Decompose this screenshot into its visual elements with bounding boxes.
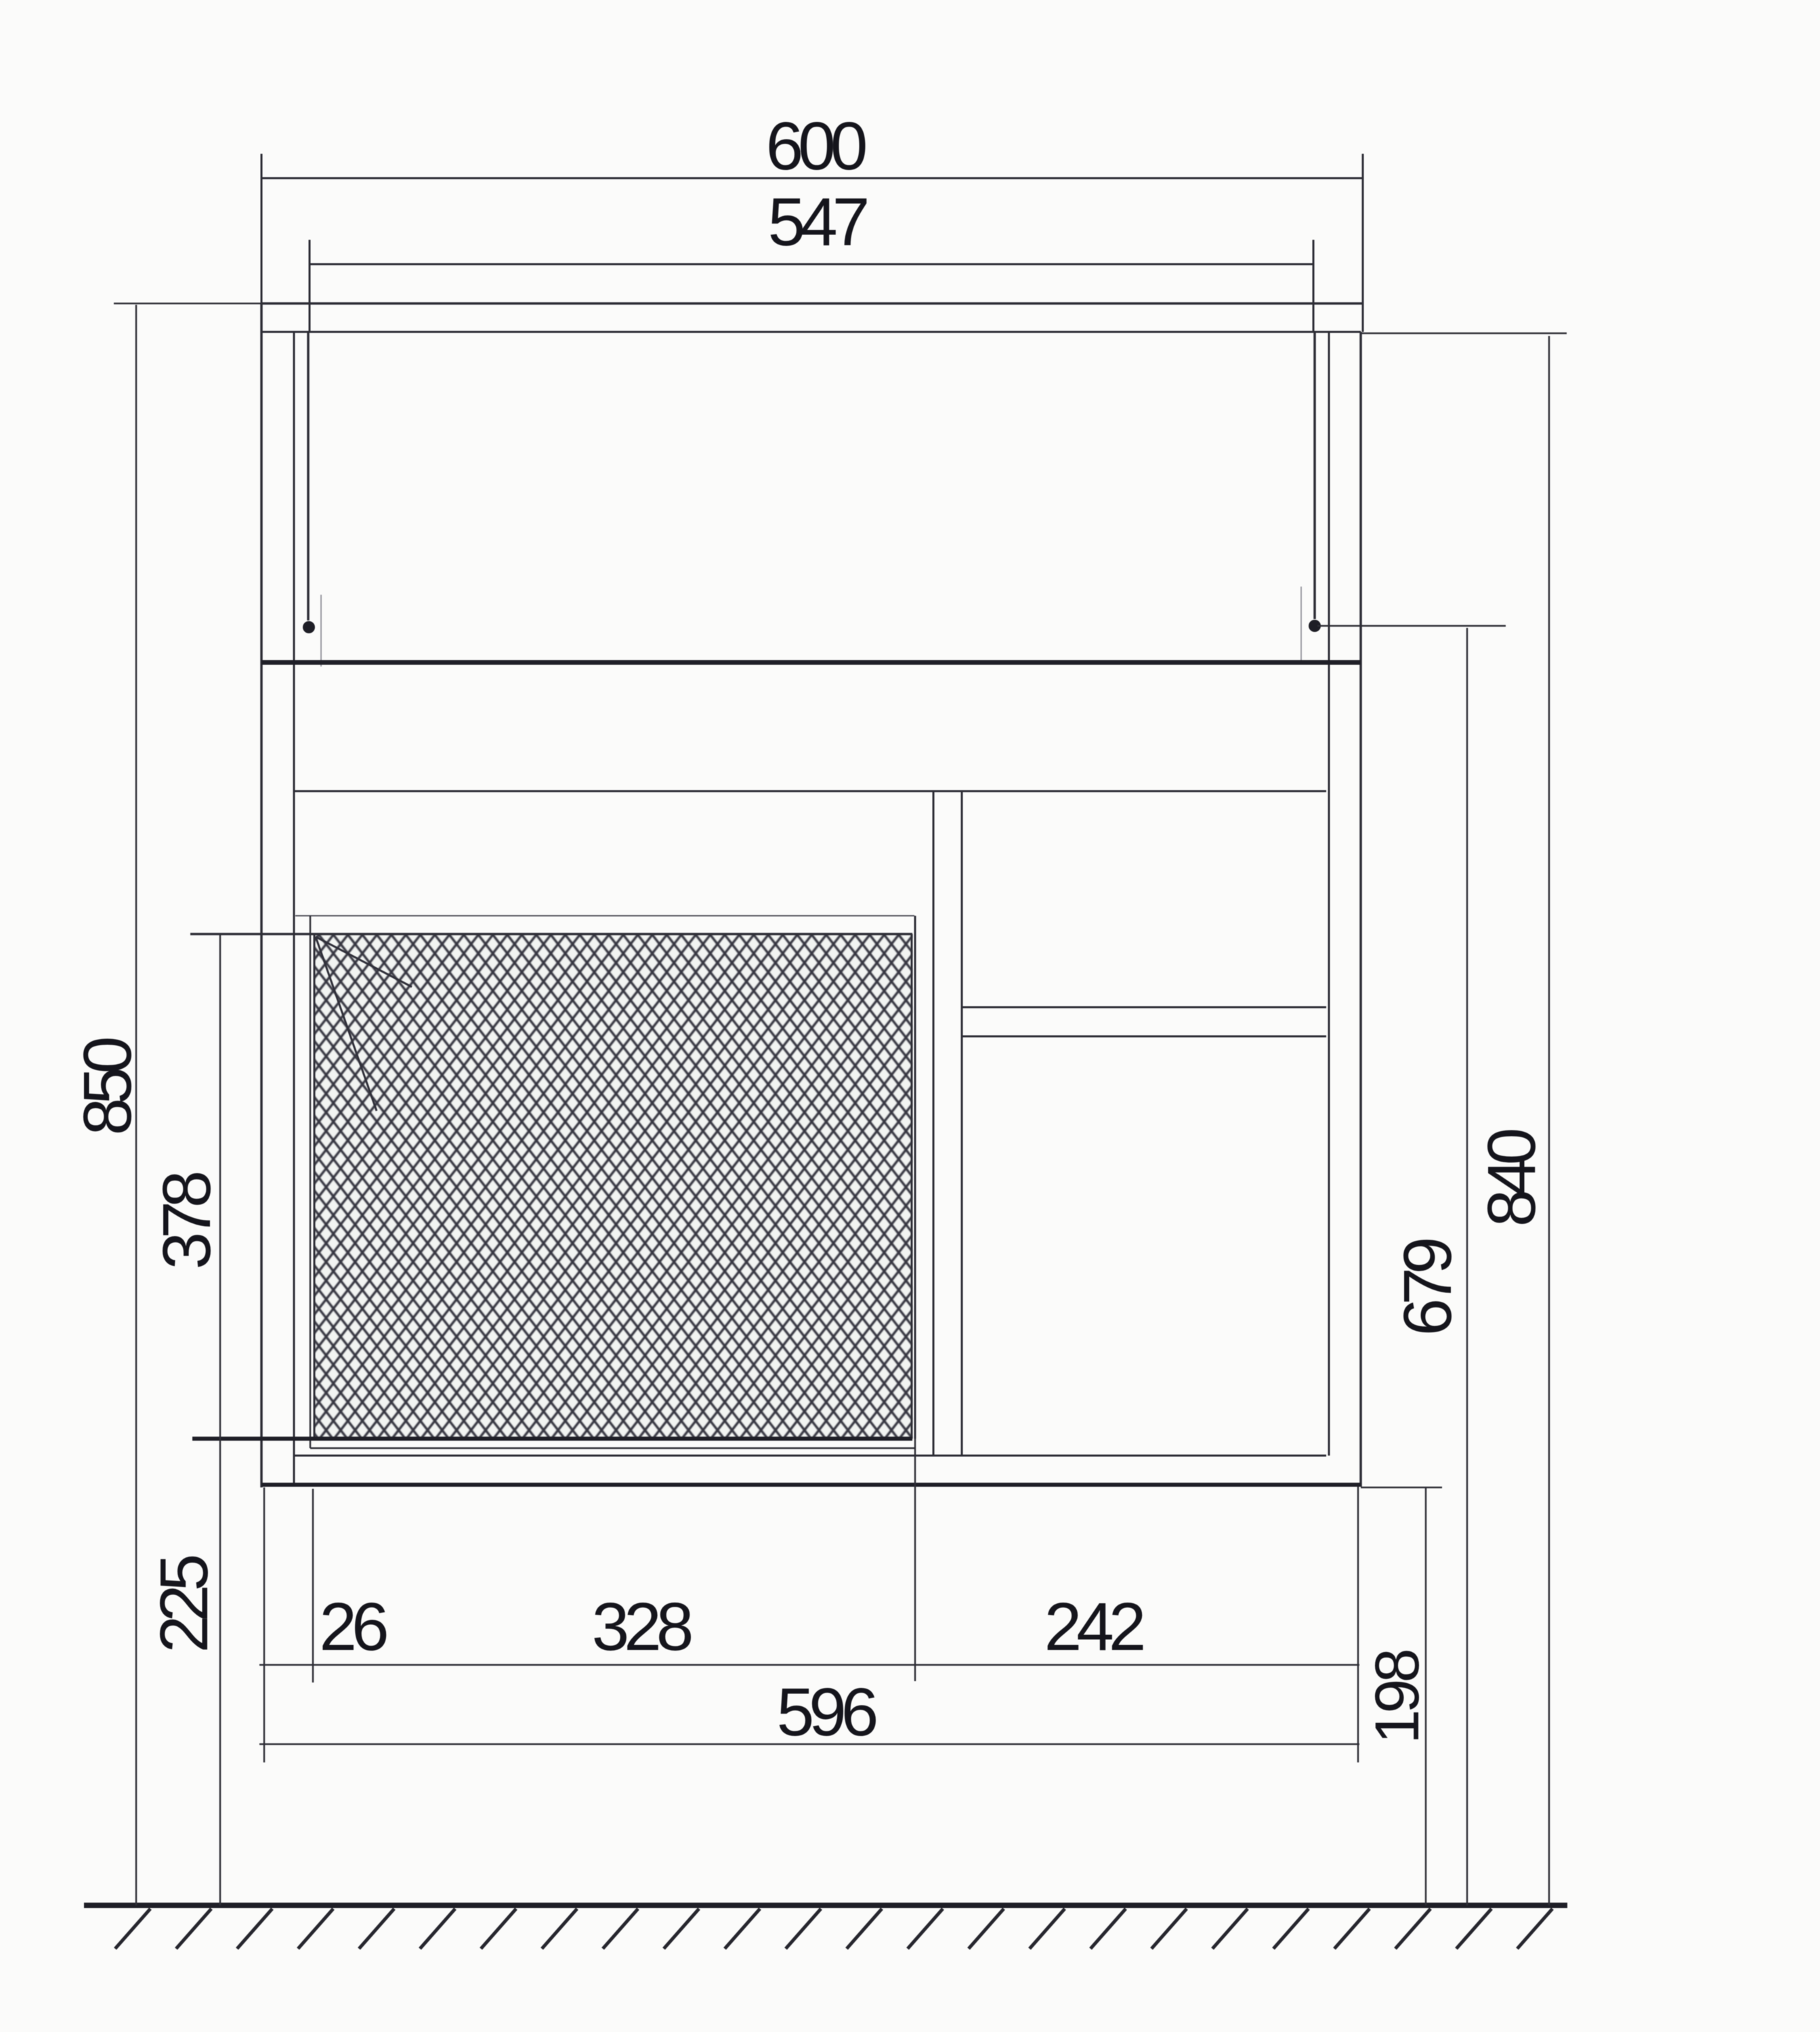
svg-text:596: 596 bbox=[777, 1674, 876, 1750]
svg-text:26: 26 bbox=[319, 1589, 387, 1665]
svg-text:328: 328 bbox=[592, 1589, 692, 1665]
svg-text:679: 679 bbox=[1390, 1240, 1466, 1336]
svg-text:242: 242 bbox=[1044, 1589, 1143, 1665]
svg-text:225: 225 bbox=[146, 1556, 222, 1653]
svg-text:378: 378 bbox=[149, 1172, 225, 1269]
svg-text:850: 850 bbox=[70, 1038, 146, 1135]
svg-text:600: 600 bbox=[766, 108, 866, 184]
svg-text:840: 840 bbox=[1474, 1130, 1550, 1227]
svg-text:547: 547 bbox=[768, 184, 867, 260]
svg-text:198: 198 bbox=[1363, 1650, 1432, 1743]
